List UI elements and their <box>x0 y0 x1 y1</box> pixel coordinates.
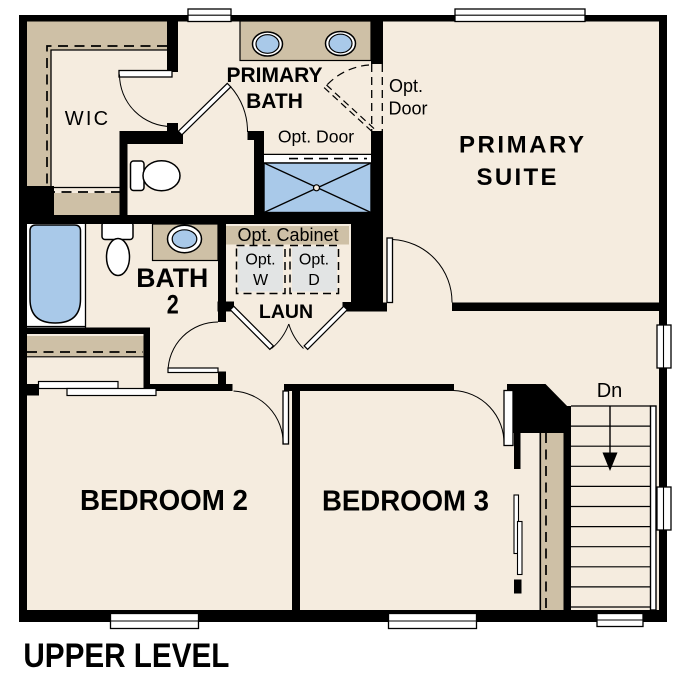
svg-text:Opt.: Opt. <box>389 76 423 96</box>
svg-text:BEDROOM 2: BEDROOM 2 <box>80 485 248 517</box>
svg-text:W: W <box>253 272 269 289</box>
svg-text:D: D <box>308 272 320 289</box>
svg-text:BEDROOM 3: BEDROOM 3 <box>322 486 489 518</box>
svg-text:Door: Door <box>388 99 427 119</box>
svg-text:PRIMARY: PRIMARY <box>459 132 584 159</box>
svg-text:Dn: Dn <box>597 380 623 402</box>
svg-text:2: 2 <box>167 290 179 320</box>
svg-text:BATH: BATH <box>136 263 208 293</box>
svg-text:Opt. Door: Opt. Door <box>278 127 354 147</box>
svg-text:Opt.: Opt. <box>245 252 275 269</box>
svg-text:WIC: WIC <box>65 108 110 130</box>
svg-text:PRIMARY: PRIMARY <box>226 64 322 87</box>
svg-text:SUITE: SUITE <box>477 164 557 191</box>
svg-text:LAUN: LAUN <box>259 301 313 323</box>
svg-text:Opt.: Opt. <box>299 252 329 269</box>
svg-text:UPPER LEVEL: UPPER LEVEL <box>23 637 229 675</box>
svg-text:Opt. Cabinet: Opt. Cabinet <box>237 225 338 245</box>
svg-text:BATH: BATH <box>246 90 303 113</box>
